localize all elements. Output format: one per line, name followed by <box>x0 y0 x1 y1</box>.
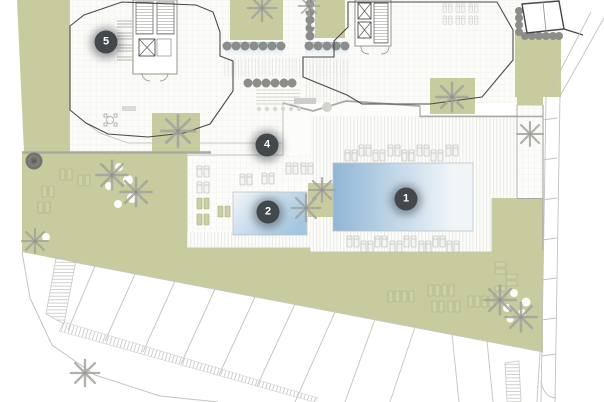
plan-marker-1[interactable]: 1 <box>395 188 418 211</box>
top-right-building <box>522 1 583 35</box>
round-tree-icon <box>26 153 43 170</box>
plan-marker-5[interactable]: 5 <box>95 31 118 54</box>
bench <box>294 98 316 104</box>
stairs-icon <box>157 2 174 34</box>
site-plan-drawing <box>0 0 604 402</box>
ramp-hatch-icon <box>59 322 318 402</box>
marker-label: 5 <box>103 37 109 48</box>
elevator-icon <box>139 39 155 56</box>
stairs-icon <box>136 2 153 34</box>
ramp-hatch-icon <box>46 258 76 324</box>
stairs-icon <box>374 3 388 43</box>
left-building-core <box>133 0 177 81</box>
site-plan: 1 2 4 5 <box>0 0 604 402</box>
door-mat <box>122 106 136 111</box>
marker-label: 2 <box>265 207 271 218</box>
marker-label: 4 <box>264 140 270 151</box>
center-building-core <box>355 0 391 54</box>
plan-marker-2[interactable]: 2 <box>257 201 280 224</box>
plan-marker-4[interactable]: 4 <box>256 134 279 157</box>
stairs-icon <box>505 361 521 402</box>
marker-label: 1 <box>403 194 409 205</box>
